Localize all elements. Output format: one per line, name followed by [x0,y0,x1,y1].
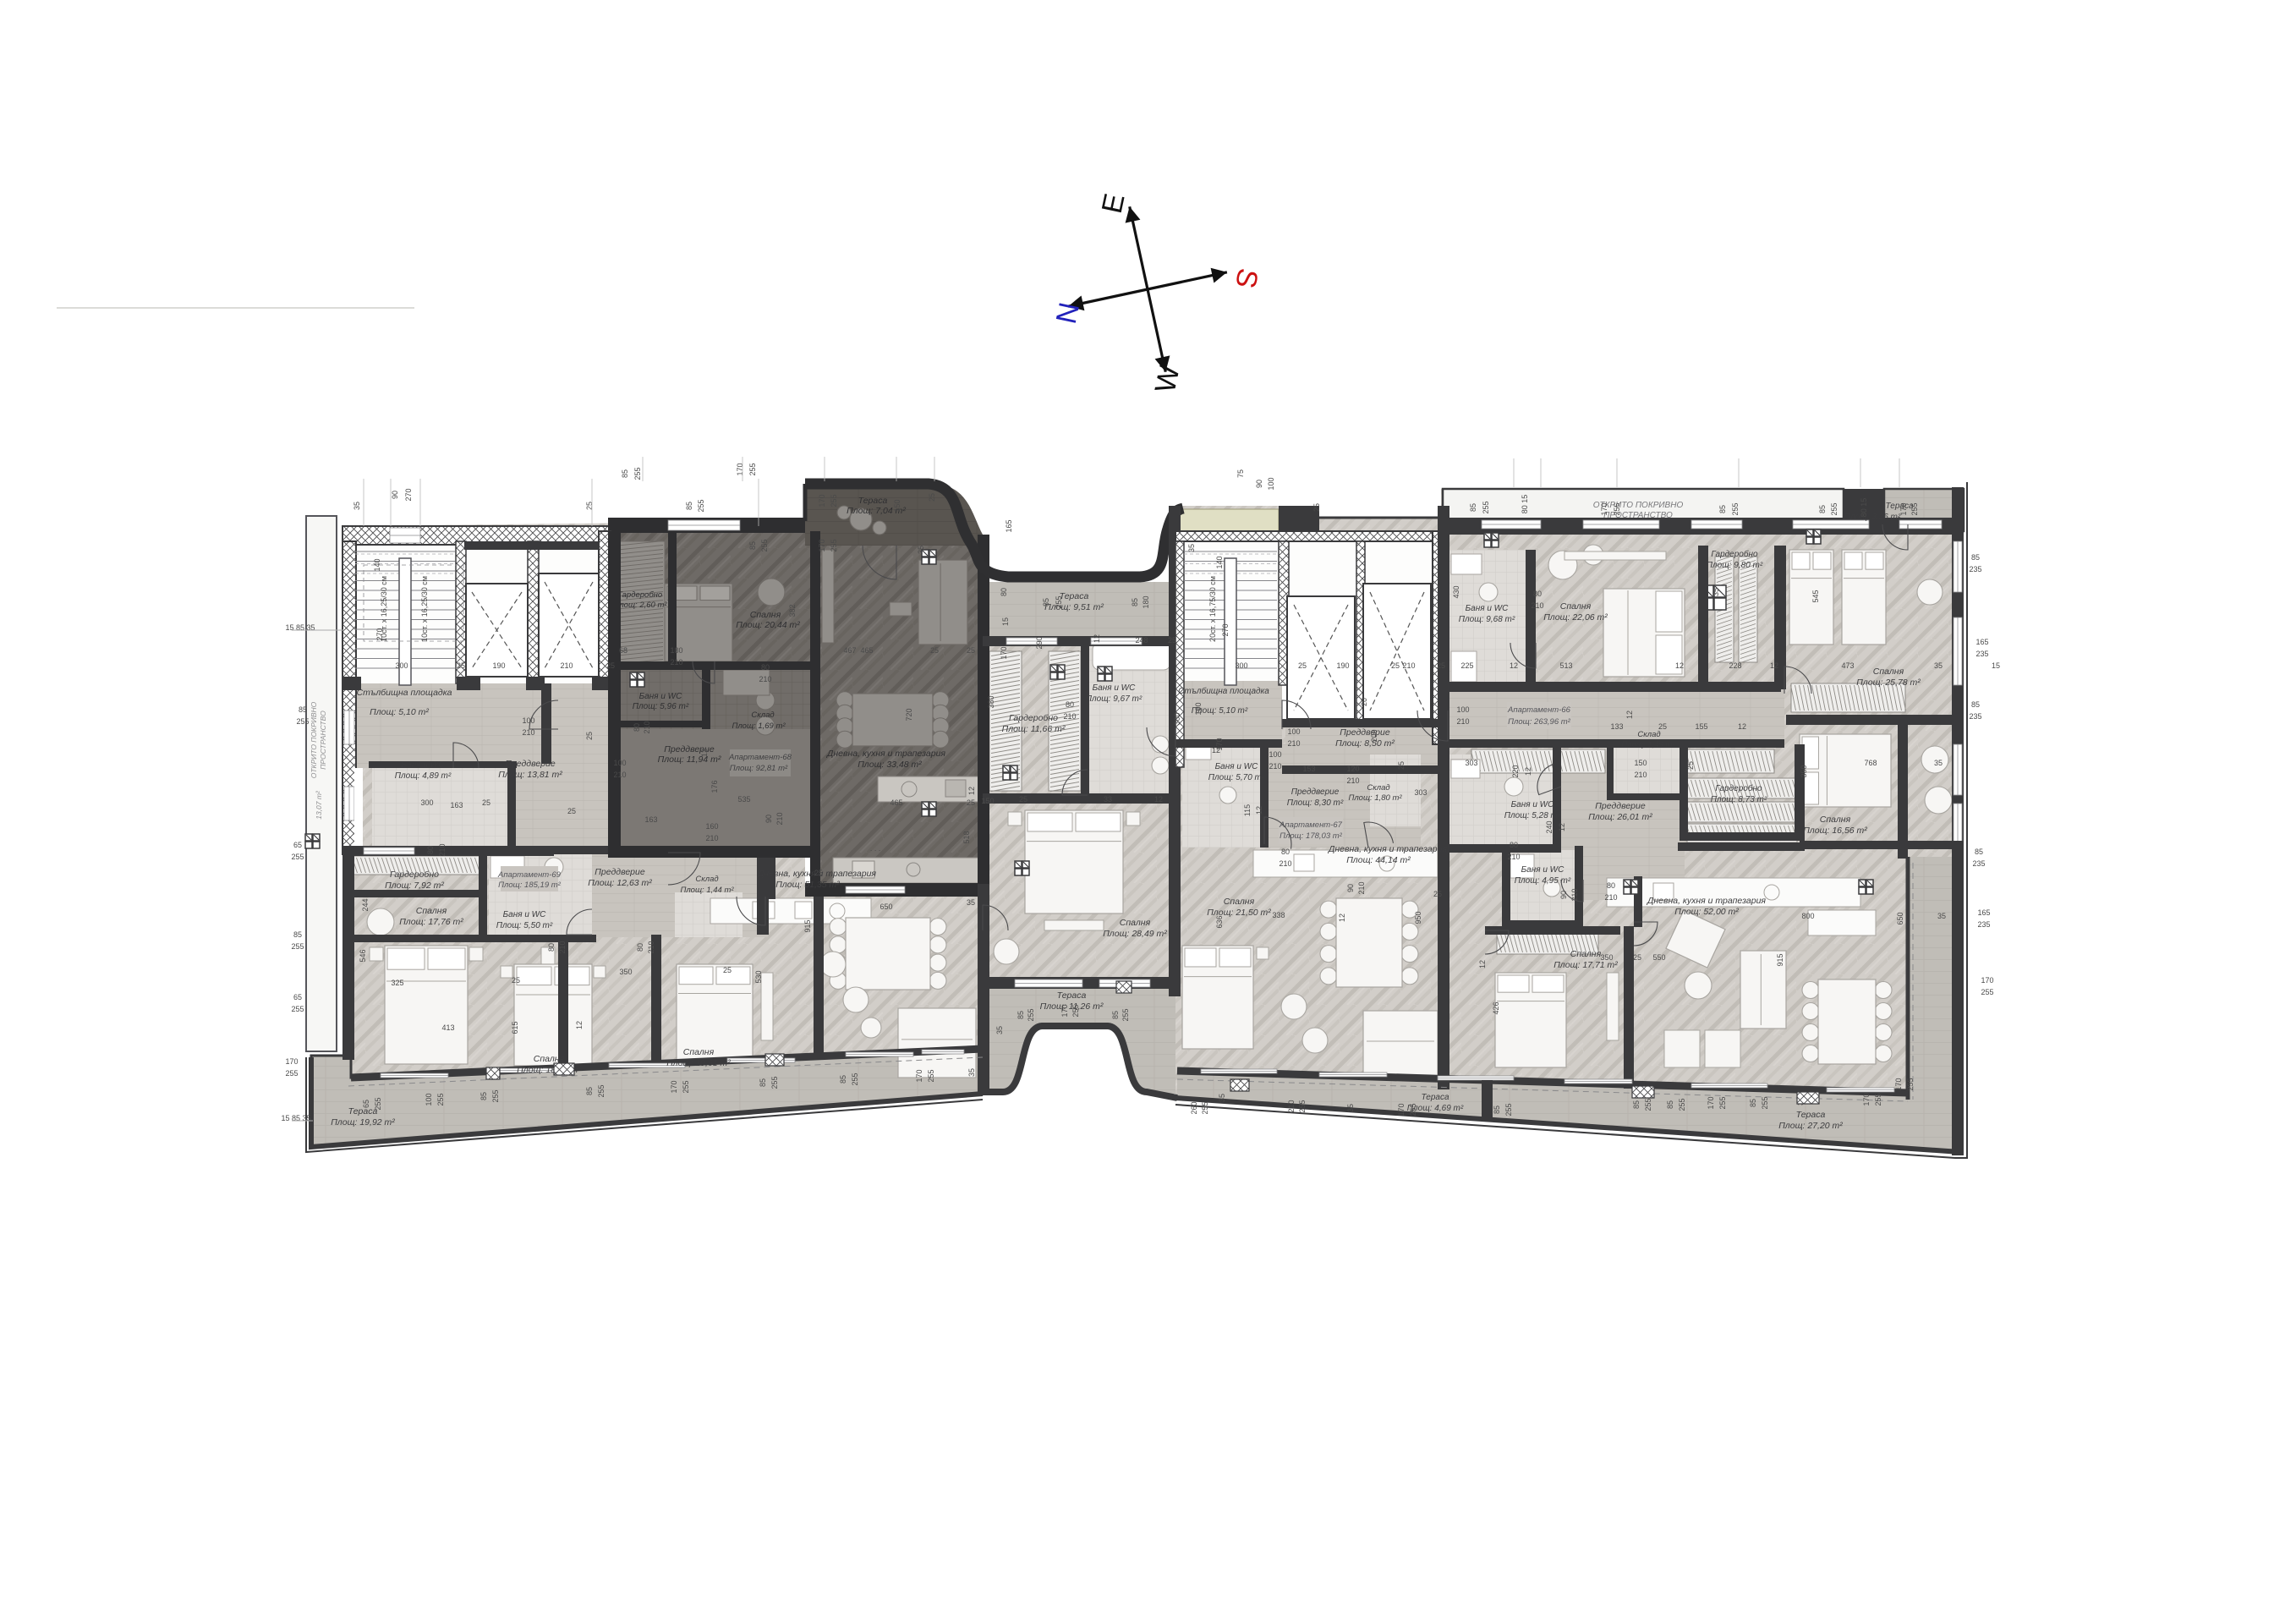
svg-text:100: 100 [1267,477,1275,490]
svg-text:Площ: 19,61 m²: Площ: 19,61 m² [666,1058,731,1068]
svg-text:85: 85 [1493,1106,1501,1114]
svg-text:25: 25 [1391,661,1400,670]
svg-text:68: 68 [619,646,627,655]
svg-text:530: 530 [754,970,763,983]
svg-text:12: 12 [1093,634,1101,643]
svg-text:25: 25 [928,493,936,502]
svg-text:Спалня: Спалня [1873,667,1904,677]
svg-text:255: 255 [291,942,304,951]
svg-text:350: 350 [1800,765,1808,777]
svg-text:25: 25 [512,976,520,985]
svg-text:255: 255 [1731,502,1740,515]
svg-text:Площ: 26,01 m²: Площ: 26,01 m² [1588,812,1652,822]
svg-text:Площ: 8,50 m²: Площ: 8,50 m² [1335,738,1395,749]
svg-text:Площ: 33,48 m²: Площ: 33,48 m² [858,760,922,770]
svg-text:255: 255 [770,1076,779,1089]
svg-text:170: 170 [285,1057,298,1066]
svg-text:255: 255 [1874,1093,1882,1106]
svg-text:270: 270 [1221,623,1230,636]
svg-text:Гардеробно: Гардеробно [1009,713,1058,723]
svg-text:255: 255 [1906,1078,1915,1090]
svg-text:255: 255 [748,463,757,475]
svg-text:90: 90 [1346,884,1355,892]
svg-text:170: 170 [1000,646,1008,659]
svg-text:35: 35 [1934,759,1943,767]
svg-text:210: 210 [1634,771,1647,779]
svg-text:210: 210 [759,675,771,683]
svg-text:Баня и WC: Баня и WC [1093,683,1136,693]
svg-text:120: 120 [1346,765,1359,773]
svg-text:Площ: 185,19 m²: Площ: 185,19 m² [498,881,561,890]
svg-text:12: 12 [1478,960,1487,968]
svg-text:Площ: 92,81 m²: Площ: 92,81 m² [730,764,788,773]
svg-text:25: 25 [1298,661,1307,670]
svg-text:170: 170 [670,1080,678,1093]
svg-text:Площ: 2,60 m²: Площ: 2,60 m² [613,601,667,610]
svg-text:12: 12 [1675,661,1684,670]
svg-text:Площ: 13,81 m²: Площ: 13,81 m² [498,770,562,780]
svg-text:80 15: 80 15 [1521,495,1529,514]
svg-text:255: 255 [597,1084,606,1097]
svg-text:12: 12 [1510,661,1518,670]
svg-text:Спалня: Спалня [1570,949,1602,959]
svg-text:12: 12 [575,1021,584,1029]
svg-text:Спалня: Спалня [1120,918,1151,928]
svg-text:255: 255 [1071,1004,1080,1017]
svg-text:300: 300 [395,661,408,670]
svg-text:225: 225 [1460,661,1473,670]
svg-text:235: 235 [1975,650,1988,658]
svg-text:20ст. x 16,75/30 см: 20ст. x 16,75/30 см [1208,576,1217,642]
svg-text:85: 85 [1111,1011,1120,1019]
svg-text:90: 90 [1559,891,1568,899]
svg-text:25: 25 [723,966,732,974]
svg-text:546: 546 [359,949,367,962]
svg-text:255: 255 [291,1005,304,1013]
svg-text:210: 210 [1269,762,1281,771]
svg-text:210: 210 [1346,776,1359,785]
svg-text:Тераса: Тераса [1057,990,1087,1001]
svg-text:25: 25 [1019,795,1027,804]
svg-text:915: 915 [803,919,812,932]
svg-text:∙ ∙ ∙: ∙ ∙ ∙ [870,846,881,854]
svg-text:25: 25 [967,646,975,655]
svg-text:Дневна, кухня и трапезария: Дневна, кухня и трапезария [1647,896,1766,906]
svg-text:170: 170 [1707,1096,1715,1109]
svg-text:240: 240 [1545,820,1553,833]
svg-text:255: 255 [491,1089,500,1102]
svg-text:300: 300 [420,798,433,807]
svg-text:85: 85 [1749,1099,1757,1107]
svg-text:85: 85 [293,930,302,939]
svg-text:Тераса: Тераса [1796,1110,1826,1120]
svg-text:25: 25 [482,798,490,807]
svg-text:115: 115 [1243,804,1252,816]
svg-text:Спалня: Спалня [750,610,781,620]
svg-text:25: 25 [457,661,465,670]
svg-text:255: 255 [633,467,642,480]
svg-text:Тераса: Тераса [1060,591,1089,601]
svg-text:170: 170 [1215,738,1224,750]
svg-text:950: 950 [1414,911,1422,924]
svg-text:Площ: 4,89 m²: Площ: 4,89 m² [395,771,452,781]
svg-text:513: 513 [1559,661,1572,670]
svg-text:Стълбищна площадка: Стълбищна площадка [1178,686,1269,696]
svg-text:80 15: 80 15 [1860,498,1868,518]
svg-text:Площ: 20,44 m²: Площ: 20,44 m² [736,620,800,630]
svg-text:80: 80 [1510,841,1518,849]
svg-text:25: 25 [1437,661,1445,670]
svg-text:210: 210 [1570,888,1579,901]
svg-text:Площ: 52,00: Площ: 52,00 m² [1674,907,1739,917]
svg-text:10ст. x 16,25/30 см: 10ст. x 16,25/30 см [420,576,429,642]
svg-text:248: 248 [1135,636,1148,645]
svg-text:140: 140 [1215,556,1224,568]
svg-text:12: 12 [1738,722,1746,731]
svg-text:255: 255 [851,1073,859,1085]
svg-text:210: 210 [438,843,447,856]
svg-text:12: 12 [1770,661,1778,670]
svg-text:155: 155 [1695,722,1707,731]
svg-text:255: 255 [1055,595,1063,608]
svg-text:Площ: 1,49 m²: Площ: 1,49 m² [1621,740,1675,749]
svg-text:Площ: 1,69 m²: Площ: 1,69 m² [732,721,786,731]
svg-text:210: 210 [1063,712,1076,721]
svg-text:80: 80 [1607,881,1615,890]
svg-text:25: 25 [1312,503,1321,512]
svg-text:12: 12 [1625,710,1634,719]
svg-text:255: 255 [285,1069,298,1078]
svg-text:165: 165 [1977,908,1990,917]
svg-text:80: 80 [1281,848,1290,856]
svg-text:255: 255 [1298,1100,1307,1112]
svg-text:35: 35 [1346,1104,1355,1112]
svg-text:Спалня: Спалня [683,1047,715,1057]
svg-text:85: 85 [1469,503,1477,512]
svg-text:467: 467 [843,646,856,655]
svg-text:25: 25 [1397,761,1406,770]
svg-text:80: 80 [761,663,770,672]
svg-text:Площ: 3,36 m²: Площ: 3,36 m² [1844,513,1901,522]
svg-text:Площ: 51,35 m: Площ: 51,35 m² [775,880,840,890]
svg-text:25: 25 [1433,890,1442,898]
svg-text:255: 255 [1830,502,1838,515]
svg-text:85: 85 [585,1087,594,1095]
svg-text:170: 170 [736,463,744,475]
svg-text:25: 25 [814,869,823,877]
svg-text:Площ: 4,95 m²: Площ: 4,95 m² [1515,876,1571,886]
svg-text:Баня и WC: Баня и WC [1521,865,1564,875]
svg-text:260: 260 [1190,1101,1198,1114]
svg-text:170: 170 [1060,1004,1069,1017]
svg-text:Спалня: Спалня [1224,897,1255,907]
svg-text:426: 426 [1492,1001,1500,1014]
svg-text:Площ: 263,96 m²: Площ: 263,96 m² [1508,717,1570,727]
svg-text:35: 35 [1934,661,1943,670]
svg-text:210: 210 [1507,853,1520,861]
svg-text:Площ: 5,96 m²: Площ: 5,96 m² [633,702,689,711]
svg-text:85: 85 [621,469,629,478]
svg-text:235: 235 [1972,859,1985,868]
svg-text:Площ: 1,44 m²: Площ: 1,44 m² [680,886,734,895]
svg-text:300: 300 [1173,712,1181,725]
svg-text:210: 210 [1287,739,1300,748]
svg-text:350: 350 [1600,953,1613,962]
svg-text:85: 85 [1632,1100,1641,1109]
svg-text:Апартамент-67: Апартамент-67 [1279,820,1343,830]
svg-text:85: 85 [685,502,693,510]
svg-text:85: 85 [1975,848,1983,856]
svg-text:Площ: 7,92 m²: Площ: 7,92 m² [385,881,444,891]
svg-text:Спалня: Спалня [1560,601,1592,612]
svg-text:210: 210 [670,658,682,667]
svg-text:Площ: 44,14 m²: Площ: 44,14 m² [1346,855,1411,865]
svg-text:210: 210 [1402,661,1415,670]
svg-text:20: 20 [1360,698,1368,706]
svg-text:473: 473 [1841,661,1854,670]
svg-text:170: 170 [1899,502,1908,515]
svg-text:300: 300 [1235,661,1247,670]
svg-text:35: 35 [1218,1094,1226,1102]
svg-text:Площ: 16,56 m²: Площ: 16,56 m² [1803,826,1867,836]
svg-text:25: 25 [1686,761,1695,770]
svg-text:Стълбищна площадка: Стълбищна площадка [356,688,452,698]
svg-text:Площ: 8,73 m²: Площ: 8,73 m² [1711,795,1767,804]
svg-text:12: 12 [1338,913,1346,922]
svg-text:80: 80 [1000,588,1008,596]
svg-text:85: 85 [1131,598,1139,606]
svg-text:Преддверие: Преддверие [1340,727,1390,738]
svg-text:255: 255 [1678,1098,1686,1111]
svg-text:170: 170 [1981,976,1993,985]
svg-text:430: 430 [1452,585,1460,598]
svg-text:615: 615 [511,1021,519,1034]
svg-text:90: 90 [391,491,399,499]
svg-text:255: 255 [1409,1103,1417,1116]
svg-text:12: 12 [1255,806,1263,815]
svg-text:25: 25 [930,646,939,655]
svg-text:Баня и WC: Баня и WC [639,692,682,701]
svg-text:255: 255 [830,539,838,551]
svg-text:Спалня: Спалня [1820,815,1851,825]
svg-text:Площ: 9,68 m²: Площ: 9,68 m² [1459,615,1515,624]
svg-text:190: 190 [492,661,505,670]
svg-text:Баня и WC: Баня и WC [503,910,546,919]
svg-text:12: 12 [967,787,976,795]
svg-text:Площ: 25,78 m²: Площ: 25,78 m² [1856,678,1921,688]
svg-text:270: 270 [375,628,384,640]
svg-text:Баня и WC: Баня и WC [1511,800,1554,809]
svg-text:210: 210 [560,661,573,670]
svg-text:160: 160 [705,822,718,831]
svg-text:Гардеробно: Гардеробно [1711,549,1758,559]
svg-text:75: 75 [1236,469,1245,478]
svg-text:ОТКРИТО ПОКРИВНО: ОТКРИТО ПОКРИВНО [310,701,318,778]
svg-text:255: 255 [1027,1008,1035,1021]
svg-text:210: 210 [647,941,655,953]
svg-text:210: 210 [613,771,626,779]
svg-text:12: 12 [1154,795,1163,804]
svg-text:100: 100 [1456,705,1469,714]
svg-text:Площ: 8,30 m²: Площ: 8,30 m² [1287,798,1344,808]
svg-text:150: 150 [893,499,901,512]
svg-text:12: 12 [700,749,709,757]
svg-text:176: 176 [710,780,719,793]
svg-text:85: 85 [839,1075,847,1084]
svg-text:100: 100 [1269,750,1281,759]
svg-text:163: 163 [450,801,463,809]
svg-text:Площ: 17,76 m²: Площ: 17,76 m² [399,917,463,927]
svg-text:Тераса: Тераса [1421,1093,1449,1102]
svg-text:13,07 m²: 13,07 m² [315,790,323,820]
svg-text:Апартамент-68: Апартамент-68 [728,753,792,762]
svg-text:35: 35 [1187,544,1196,552]
svg-text:210: 210 [1357,881,1366,894]
svg-text:255: 255 [682,1080,690,1093]
svg-text:210: 210 [1531,601,1543,610]
svg-text:Площ: 5,50 m²: Площ: 5,50 m² [496,921,553,930]
svg-text:255: 255 [374,1097,382,1110]
svg-text:65: 65 [293,993,302,1001]
svg-text:170: 170 [818,494,826,507]
svg-text:100: 100 [613,759,626,767]
svg-text:380: 380 [987,695,995,708]
svg-text:25: 25 [585,732,594,740]
svg-text:255: 255 [1201,1101,1209,1114]
svg-text:535: 535 [737,795,750,804]
svg-text:85: 85 [759,1078,767,1087]
svg-text:Баня и WC: Баня и WC [402,760,445,770]
svg-text:150: 150 [981,797,994,805]
svg-text:413: 413 [441,1023,454,1032]
svg-text:Баня и WC: Баня и WC [1215,762,1258,771]
svg-text:Баня и WC: Баня и WC [1466,604,1509,613]
svg-text:210: 210 [1456,717,1469,726]
svg-text:Апартамент-66: Апартамент-66 [1507,705,1571,715]
svg-text:35: 35 [1712,588,1720,596]
svg-text:303: 303 [1414,788,1427,797]
svg-text:Гардеробно: Гардеробно [390,870,439,880]
svg-text:Тераса: Тераса [858,496,888,506]
svg-text:163: 163 [644,815,657,824]
svg-text:65: 65 [362,1100,370,1108]
svg-text:Преддверие: Преддверие [1595,801,1646,811]
svg-text:350: 350 [619,968,632,976]
svg-text:255: 255 [1644,1098,1652,1111]
svg-text:720: 720 [905,708,913,721]
svg-text:768: 768 [1864,759,1877,767]
svg-text:255: 255 [1981,988,1993,996]
svg-text:255: 255 [1504,1103,1513,1116]
svg-text:Площ: 9,80 m²: Площ: 9,80 m² [1707,561,1763,570]
svg-text:85: 85 [1818,505,1827,513]
svg-text:85: 85 [1042,598,1050,606]
svg-text:80: 80 [636,943,644,952]
svg-text:170: 170 [915,1069,923,1082]
svg-text:228: 228 [1729,661,1741,670]
svg-text:255: 255 [436,1093,445,1106]
svg-text:800: 800 [1801,912,1814,920]
svg-text:255: 255 [1761,1096,1769,1109]
svg-text:Площ: 1,80 m²: Площ: 1,80 m² [1348,793,1402,803]
svg-text:85: 85 [1971,700,1980,709]
svg-text:210: 210 [705,834,718,842]
svg-text:25: 25 [567,807,576,815]
svg-text:25: 25 [1658,722,1667,731]
svg-text:Площ: 5,70 m²: Площ: 5,70 m² [1208,773,1265,782]
svg-text:210: 210 [1287,1100,1296,1112]
svg-text:Склад: Склад [695,875,718,884]
svg-text:255: 255 [296,717,309,726]
svg-text:Спалня: Спалня [416,906,447,916]
svg-text:85: 85 [1666,1100,1674,1109]
svg-text:210: 210 [1604,893,1617,902]
svg-text:Дневна, кухня и трапезария: Дневна, кухня и трапезария [826,749,945,759]
svg-text:12: 12 [1524,767,1532,776]
svg-text:Площ: 9,51 m²: Площ: 9,51 m² [1044,602,1104,612]
svg-text:35: 35 [1937,912,1946,920]
svg-text:100: 100 [522,716,534,725]
svg-text:Гардеробно: Гардеробно [1715,783,1762,793]
svg-text:636: 636 [1215,915,1224,928]
svg-text:12: 12 [1558,823,1566,831]
svg-text:15: 15 [1001,617,1010,626]
svg-text:255: 255 [1121,1008,1130,1021]
svg-text:180: 180 [1142,595,1150,608]
svg-text:Склад: Склад [1367,783,1389,793]
svg-text:550: 550 [1652,953,1665,962]
svg-text:25: 25 [606,661,615,670]
svg-text:255: 255 [1910,502,1919,515]
svg-text:140: 140 [373,558,381,571]
svg-text:170: 170 [1894,1078,1903,1090]
svg-text:Площ: 28,49 m²: Площ: 28,49 m² [1103,929,1167,939]
svg-text:80: 80 [633,723,641,732]
svg-text:85: 85 [1971,553,1980,562]
svg-text:190: 190 [1336,661,1349,670]
svg-text:170: 170 [818,539,826,551]
svg-text:255: 255 [830,494,838,507]
svg-text:545: 545 [1811,590,1820,602]
svg-text:Площ: 27,20 m²: Площ: 27,20 m² [1778,1121,1843,1131]
svg-text:65: 65 [293,841,302,849]
svg-text:25: 25 [967,798,975,807]
svg-text:15: 15 [1992,661,2000,670]
svg-text:ПРОСТРАНСТВО: ПРОСТРАНСТВО [319,710,327,770]
svg-text:465: 465 [860,646,873,655]
svg-text:165: 165 [1975,638,1988,646]
svg-text:165: 165 [1005,519,1013,532]
svg-text:100: 100 [425,1093,433,1106]
svg-text:Преддверие: Преддверие [505,759,556,769]
svg-text:85: 85 [1016,1011,1025,1019]
svg-text:Склад: Склад [751,710,774,720]
svg-text:85: 85 [479,1092,488,1100]
svg-text:255: 255 [291,853,304,861]
svg-text:650: 650 [1896,912,1904,924]
svg-text:100: 100 [1287,727,1300,736]
svg-text:338: 338 [1272,911,1285,919]
svg-text:150: 150 [1634,759,1647,767]
svg-text:255: 255 [697,499,705,512]
svg-text:90: 90 [764,815,773,823]
svg-text:235: 235 [1969,565,1981,573]
svg-text:Преддверие: Преддверие [595,867,645,877]
svg-text:133: 133 [1610,722,1623,731]
svg-text:Площ: 12,63 m²: Площ: 12,63 m² [588,878,652,888]
svg-text:170: 170 [1862,1093,1871,1106]
svg-text:180: 180 [670,646,682,655]
